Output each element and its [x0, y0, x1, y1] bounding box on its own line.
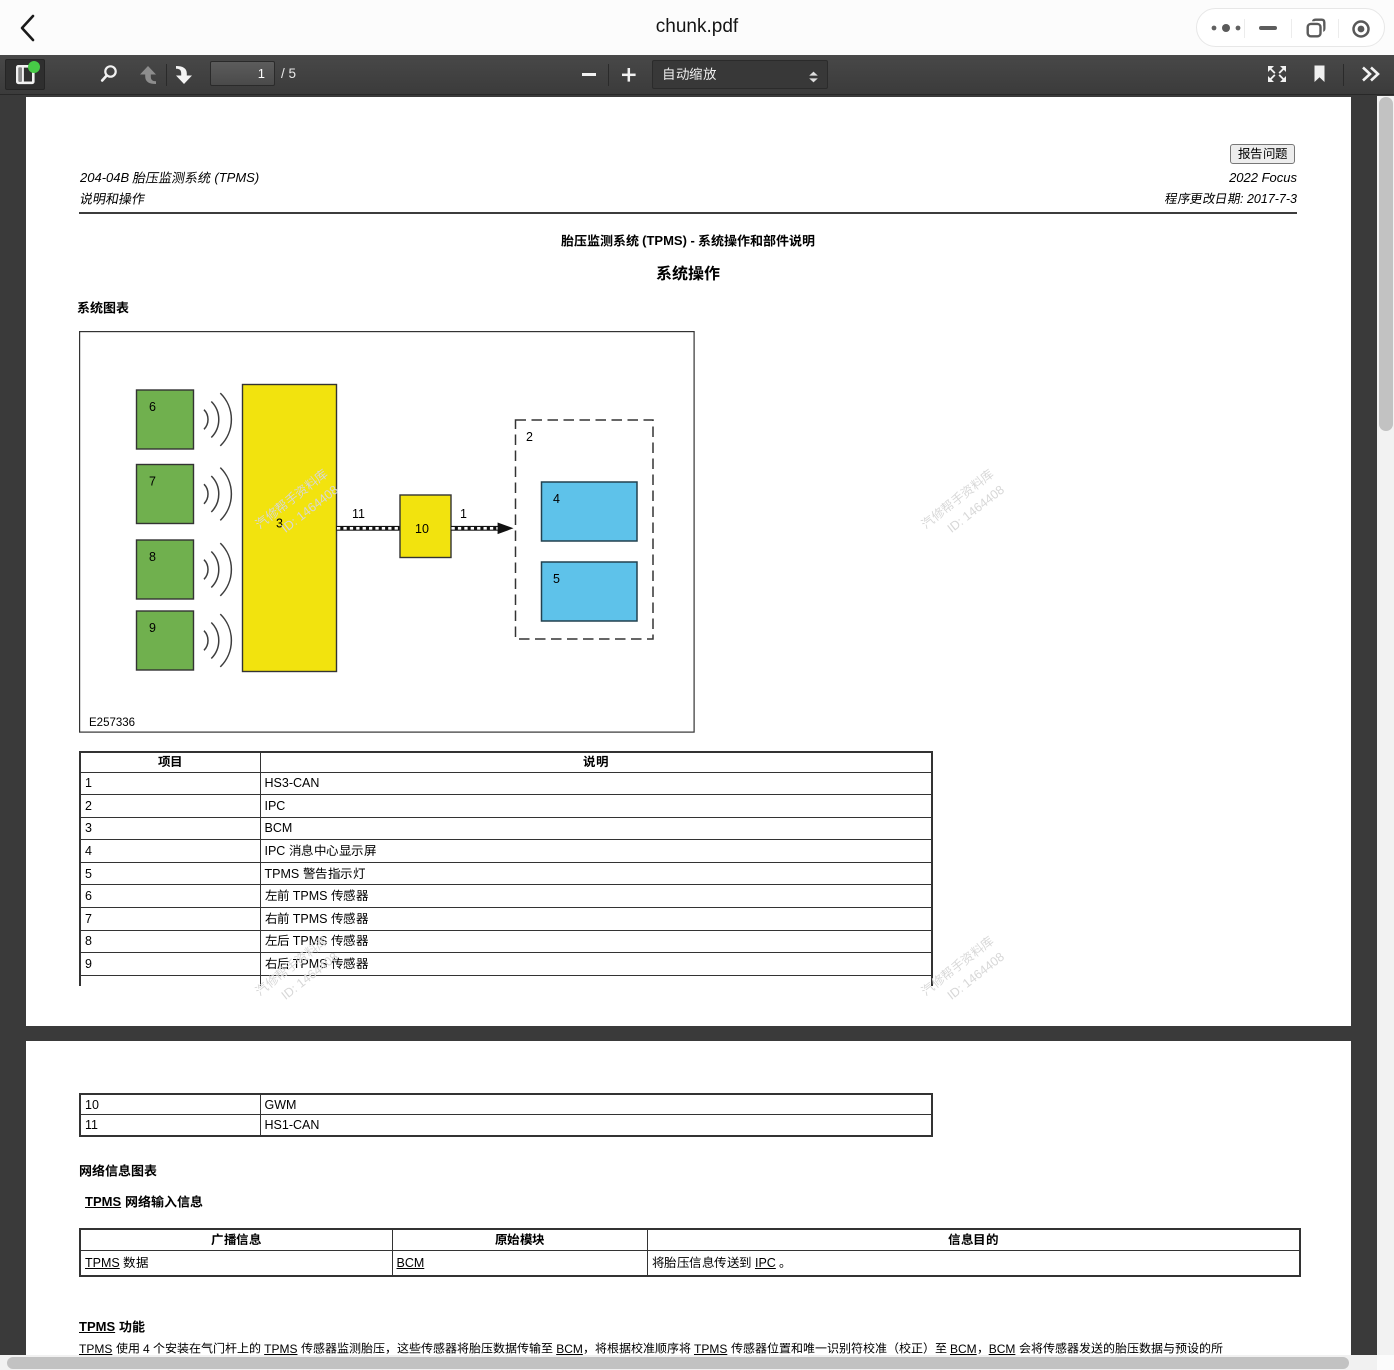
svg-text:5: 5	[553, 572, 560, 586]
svg-text:4: 4	[553, 492, 560, 506]
svg-text:11: 11	[352, 507, 365, 521]
svg-text:10: 10	[415, 522, 429, 536]
svg-text:8: 8	[149, 550, 156, 564]
svg-text:9: 9	[149, 621, 156, 635]
svg-text:2: 2	[526, 430, 533, 444]
svg-text:6: 6	[149, 400, 156, 414]
svg-text:E257336: E257336	[89, 717, 135, 729]
svg-text:7: 7	[149, 475, 156, 489]
svg-text:1: 1	[460, 507, 467, 521]
